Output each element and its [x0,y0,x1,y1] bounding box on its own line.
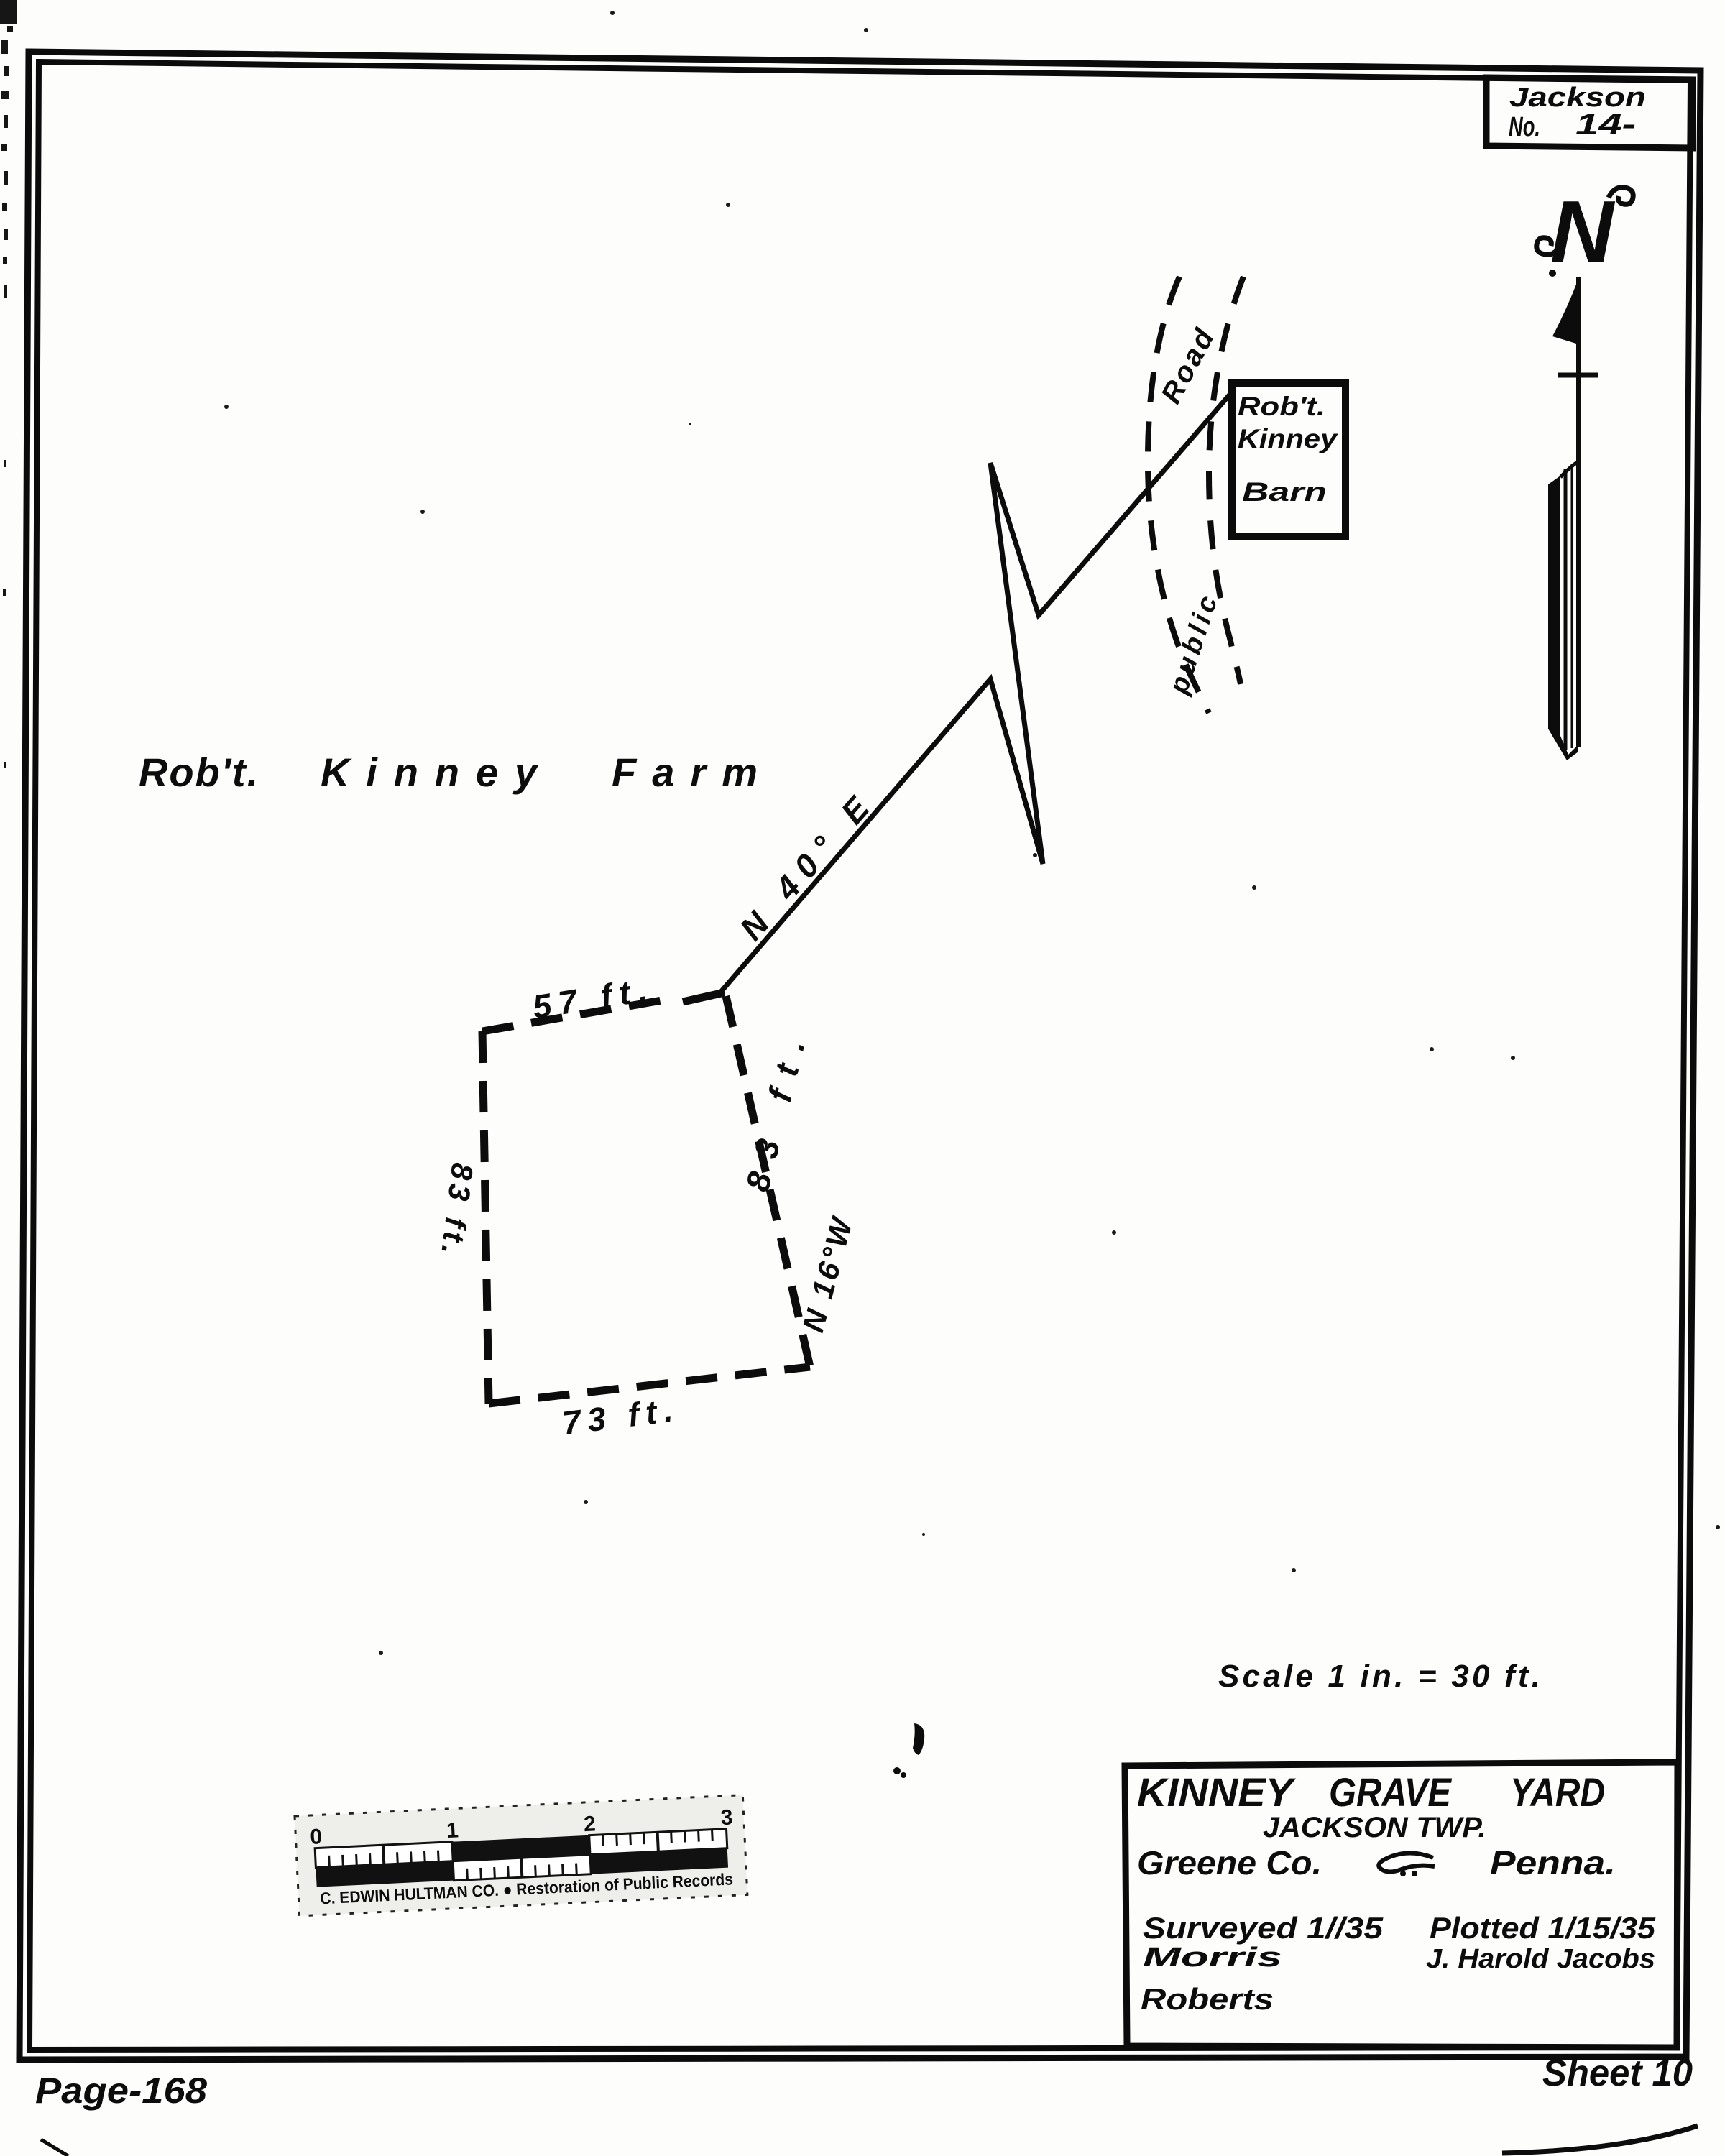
svg-text:JACKSON TWP.: JACKSON TWP. [1263,1812,1486,1843]
svg-text:Rob't.: Rob't. [1238,392,1325,421]
svg-text:N: N [1550,183,1616,280]
svg-text:0: 0 [310,1825,323,1849]
svg-text:Surveyed 1//35: Surveyed 1//35 [1143,1911,1384,1945]
svg-text:2: 2 [583,1812,596,1836]
svg-text:KINNEY: KINNEY [1137,1769,1297,1815]
svg-text:Sheet 10: Sheet 10 [1542,2053,1693,2094]
svg-text:Scale 1 in. = 30 ft.: Scale 1 in. = 30 ft. [1218,1659,1540,1694]
svg-text:Plotted 1/15/35: Plotted 1/15/35 [1430,1911,1656,1945]
svg-text:Penna.: Penna. [1490,1844,1616,1881]
svg-text:Kinney: Kinney [1238,424,1339,453]
svg-text:Page-168: Page-168 [35,2070,207,2111]
svg-text:Rob't.: Rob't. [139,750,258,795]
svg-text:J. Harold Jacobs: J. Harold Jacobs [1426,1944,1655,1974]
svg-text:No.: No. [1509,112,1540,142]
svg-text:Morris: Morris [1143,1943,1282,1973]
svg-text:Greene Co.: Greene Co. [1137,1844,1322,1881]
svg-text:1: 1 [446,1818,459,1843]
svg-text:YARD: YARD [1510,1769,1605,1815]
svg-text:14-: 14- [1575,107,1636,141]
svg-text:GRAVE: GRAVE [1329,1769,1452,1815]
svg-text:Barn: Barn [1242,477,1327,507]
svg-text:3: 3 [720,1805,733,1830]
svg-text:Roberts: Roberts [1141,1982,1274,2016]
